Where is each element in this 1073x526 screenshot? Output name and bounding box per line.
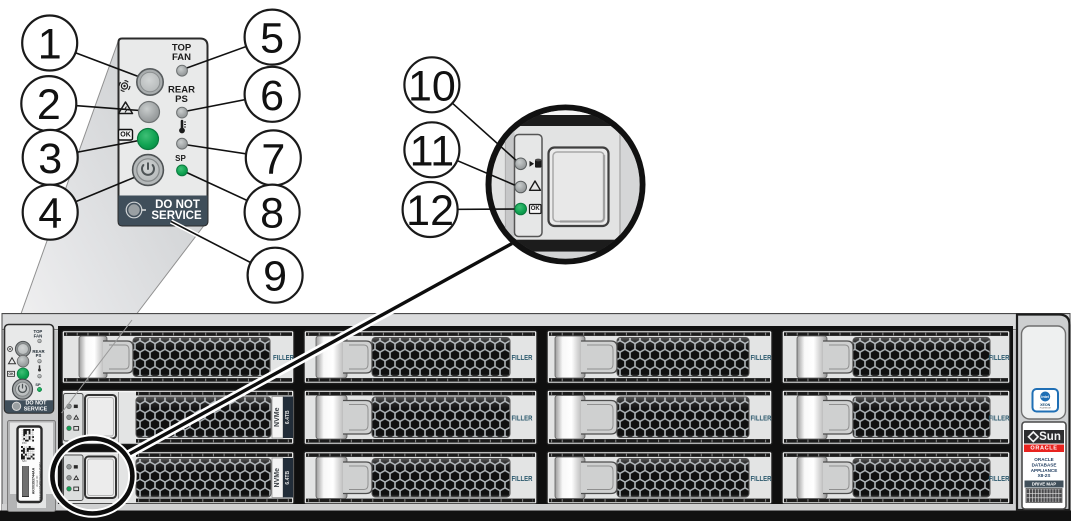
svg-text:FILLER: FILLER bbox=[989, 413, 1011, 422]
svg-text:7: 7 bbox=[261, 135, 285, 183]
svg-text:ORACLE: ORACLE bbox=[1030, 445, 1057, 451]
svg-text:DO NOT: DO NOT bbox=[155, 199, 200, 211]
svg-text:3: 3 bbox=[38, 135, 62, 183]
svg-text:FILLER: FILLER bbox=[512, 474, 534, 483]
svg-text:NVMe: NVMe bbox=[274, 407, 281, 427]
svg-text:X8-2S: X8-2S bbox=[1038, 473, 1051, 478]
svg-text:FILLER: FILLER bbox=[751, 413, 773, 422]
svg-text:APPLIANCE: APPLIANCE bbox=[1031, 468, 1058, 473]
svg-text:PS: PS bbox=[36, 353, 42, 358]
svg-text:FILLER: FILLER bbox=[751, 353, 773, 362]
svg-text:OK: OK bbox=[120, 132, 131, 139]
svg-text:SERVICE: SERVICE bbox=[24, 406, 48, 412]
svg-text:SP: SP bbox=[175, 154, 186, 163]
svg-text:ORACLE: ORACLE bbox=[1034, 457, 1053, 462]
svg-text:XEON: XEON bbox=[1040, 403, 1051, 407]
svg-text:6.4TB: 6.4TB bbox=[285, 471, 291, 485]
svg-text:PS: PS bbox=[175, 94, 188, 105]
svg-text:intel: intel bbox=[1041, 395, 1049, 399]
svg-text:FILLER: FILLER bbox=[989, 353, 1011, 362]
svg-text:FAN: FAN bbox=[34, 334, 43, 339]
svg-text:PLATINUM: PLATINUM bbox=[1040, 406, 1051, 409]
svg-text:1: 1 bbox=[38, 21, 62, 69]
svg-text:P/N: P/N bbox=[22, 441, 26, 445]
svg-text:FAN: FAN bbox=[172, 52, 191, 63]
svg-text:12: 12 bbox=[406, 187, 454, 235]
svg-text:8: 8 bbox=[260, 190, 284, 238]
svg-text:5: 5 bbox=[260, 15, 284, 63]
svg-text:2: 2 bbox=[37, 81, 61, 129]
svg-text:Sun: Sun bbox=[1039, 431, 1061, 443]
svg-text:6.4TB: 6.4TB bbox=[285, 410, 291, 424]
svg-text:11: 11 bbox=[410, 127, 455, 175]
svg-text:SP: SP bbox=[35, 382, 41, 387]
svg-text:FILLER: FILLER bbox=[512, 413, 534, 422]
svg-text:DATABASE: DATABASE bbox=[1032, 462, 1057, 467]
svg-text:S/N: S/N bbox=[22, 459, 26, 463]
svg-text:SERVICE: SERVICE bbox=[151, 210, 202, 222]
svg-text:8F23K67B4BCDEF0125487: 8F23K67B4BCDEF0125487 bbox=[38, 462, 42, 500]
svg-text:OK: OK bbox=[531, 206, 541, 212]
svg-text:NVMe: NVMe bbox=[274, 468, 281, 488]
svg-text:9: 9 bbox=[263, 253, 287, 301]
svg-text:FILLER: FILLER bbox=[989, 474, 1011, 483]
svg-text:6: 6 bbox=[260, 72, 284, 120]
svg-text:FILLER: FILLER bbox=[512, 353, 534, 362]
svg-text:FILLER: FILLER bbox=[751, 474, 773, 483]
svg-text:10: 10 bbox=[408, 62, 456, 110]
svg-text:DRIVE MAP: DRIVE MAP bbox=[1032, 482, 1056, 487]
svg-text:4: 4 bbox=[38, 190, 62, 238]
svg-text:OK: OK bbox=[8, 372, 14, 376]
